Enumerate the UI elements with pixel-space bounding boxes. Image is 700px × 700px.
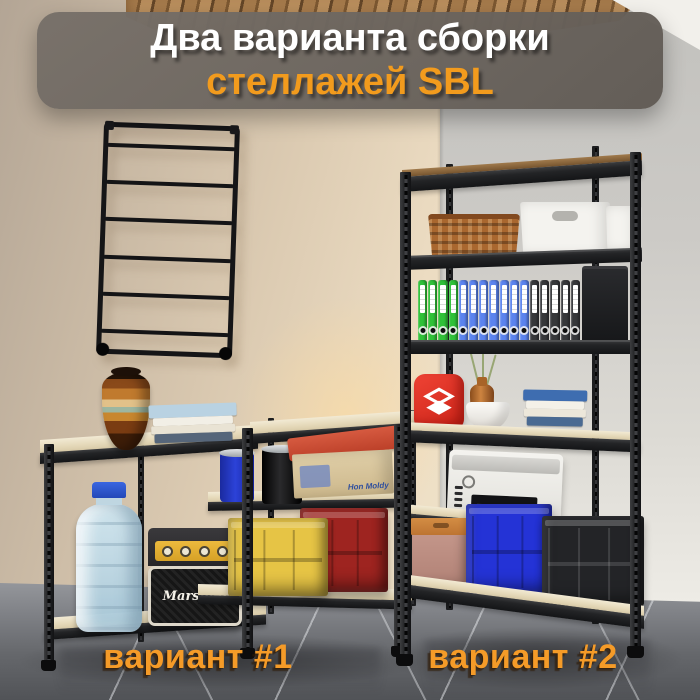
printer-lid	[452, 455, 561, 475]
binder-spine	[459, 280, 468, 344]
binder-finger-hole	[481, 328, 486, 333]
printer-button	[454, 504, 462, 507]
binder-spine	[571, 280, 580, 344]
binder-spine	[540, 280, 549, 344]
rack2-post	[400, 172, 411, 658]
binder-finger-hole	[532, 328, 537, 333]
tan-storage-box	[412, 518, 470, 582]
binder-spine	[489, 280, 498, 344]
ladder-mount-left	[105, 121, 114, 130]
amp-knob	[180, 546, 191, 557]
binder-finger-hole	[461, 328, 466, 333]
binder-label	[471, 285, 476, 313]
variant2-label: вариант #2	[403, 638, 643, 677]
black-crate	[542, 516, 644, 606]
binder-spine	[520, 280, 529, 344]
shoebox-print	[300, 465, 331, 489]
binder-label	[573, 285, 578, 313]
binder-label	[420, 285, 425, 313]
rack1-post	[44, 444, 54, 664]
amp-knob	[162, 546, 173, 557]
binder-finger-hole	[502, 328, 507, 333]
binder-label	[532, 285, 537, 313]
binder-spine	[479, 280, 488, 344]
amp-knob	[199, 546, 210, 557]
printer-button	[455, 486, 463, 489]
box-handle-hole	[552, 211, 578, 221]
binder-label	[451, 285, 456, 313]
binder-finger-hole	[430, 328, 435, 333]
binder-label	[461, 285, 466, 313]
rack2-post	[630, 152, 641, 650]
binder-spine	[561, 280, 570, 344]
binder-spine	[428, 280, 437, 344]
binder-label	[512, 285, 517, 313]
ladder-rung	[106, 180, 234, 188]
rack1-post	[242, 428, 253, 652]
binder-label	[552, 285, 557, 313]
binder-finger-hole	[420, 328, 425, 333]
water-bottle	[76, 504, 142, 632]
blue-crate	[466, 504, 552, 594]
ladder-rung	[107, 143, 235, 151]
printer-button	[455, 492, 463, 495]
binder-label	[522, 285, 527, 313]
ladder-rungs	[101, 143, 236, 337]
binder-label	[430, 285, 435, 313]
binder-spine	[438, 280, 447, 344]
wall-mounted-ladder-rack	[96, 122, 240, 359]
amp-knob	[217, 546, 228, 557]
binder-finger-hole	[491, 328, 496, 333]
binder-spine	[550, 280, 559, 344]
rack1-foot	[41, 660, 56, 671]
binder-finger-hole	[440, 328, 445, 333]
ladder-rung	[105, 217, 233, 225]
rack2-shelf-3	[402, 340, 640, 354]
shoebox: Hon Moldy	[292, 449, 394, 498]
binder-finger-hole	[451, 328, 456, 333]
black-box	[582, 266, 628, 344]
binder-label	[440, 285, 445, 313]
amp-control-panel	[155, 541, 235, 561]
banner-title-line1: Два варианта сборки	[150, 18, 549, 60]
ladder-rung	[103, 254, 231, 262]
binder-label	[563, 285, 568, 313]
stack-logo-icon	[422, 385, 456, 419]
ladder-mount-right	[230, 125, 239, 134]
printer-power-button	[462, 475, 476, 489]
binder-finger-hole	[522, 328, 527, 333]
banner-title-line2: стеллажей SBL	[206, 62, 494, 104]
binder-spine	[510, 280, 519, 344]
variant1-label: вариант #1	[78, 638, 318, 677]
shoebox-text: Hon Moldy	[348, 481, 389, 492]
red-logo-box	[414, 374, 464, 430]
ladder-foot-left	[96, 343, 109, 356]
binder-spine	[530, 280, 539, 344]
binder-finger-hole	[542, 328, 547, 333]
binder-finger-hole	[563, 328, 568, 333]
ladder-rung	[102, 291, 230, 299]
binder-label	[481, 285, 486, 313]
printer-button	[454, 498, 462, 501]
binder-label	[502, 285, 507, 313]
binder-finger-hole	[512, 328, 517, 333]
binder-finger-hole	[553, 328, 558, 333]
binder-spine	[500, 280, 509, 344]
book-stack-right	[522, 389, 589, 426]
scene: Marshall Hon Moldy	[0, 0, 700, 700]
binder-spine	[418, 280, 427, 344]
binder-finger-hole	[471, 328, 476, 333]
binder-spine	[449, 280, 458, 344]
binder-finger-hole	[573, 328, 578, 333]
tan-box-lid	[409, 518, 473, 535]
bottle-cap	[92, 482, 126, 498]
binder-label	[491, 285, 496, 313]
binder-row	[418, 280, 580, 344]
binder-spine	[469, 280, 478, 344]
book-stack-left	[147, 402, 238, 443]
binder-label	[542, 285, 547, 313]
title-banner: Два варианта сборки стеллажей SBL	[37, 12, 663, 109]
ladder-rung	[101, 329, 229, 337]
